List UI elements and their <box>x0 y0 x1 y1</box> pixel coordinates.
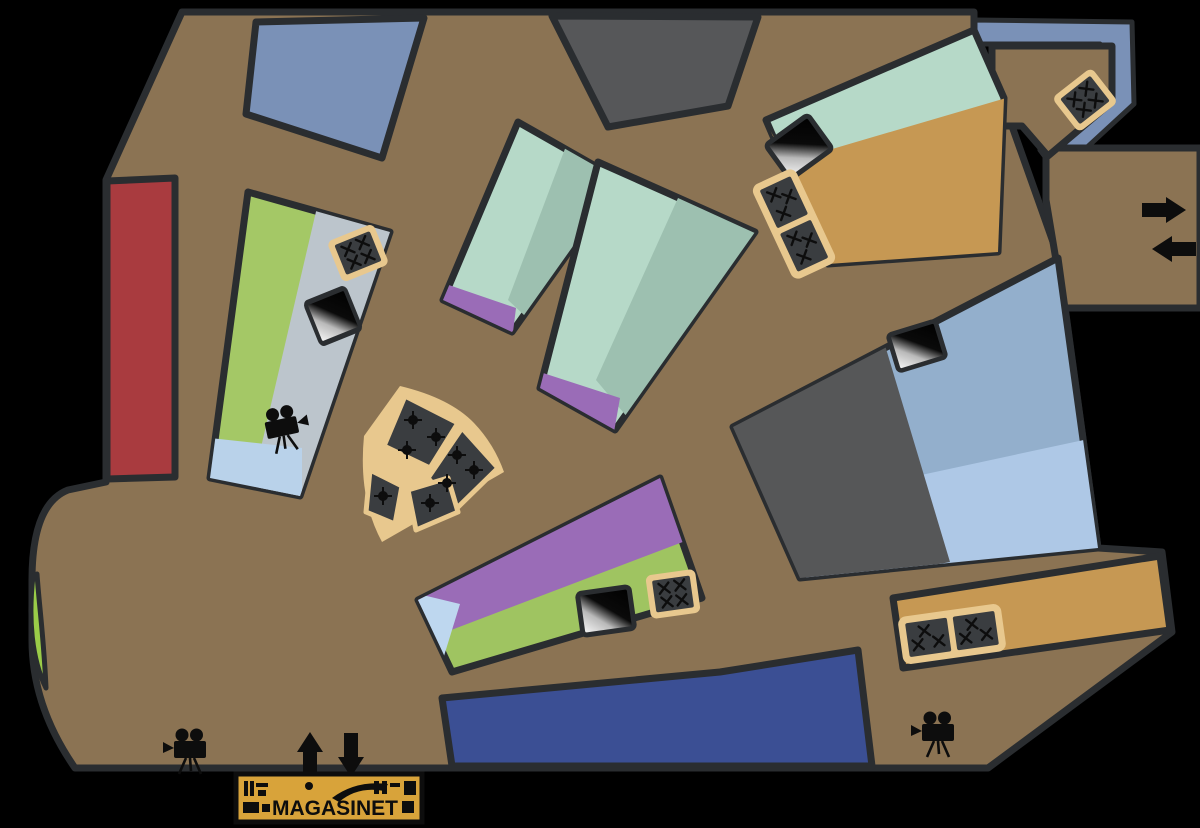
bottom-room-seating-table <box>645 569 701 620</box>
exit-corridor <box>1046 148 1200 308</box>
logo-plate: MAGASINET <box>236 774 422 822</box>
red-room <box>107 178 175 479</box>
logo-text: MAGASINET <box>272 797 398 820</box>
floor-plan-canvas: MAGASINET <box>0 0 1200 828</box>
bottom-room-screen <box>577 587 634 636</box>
